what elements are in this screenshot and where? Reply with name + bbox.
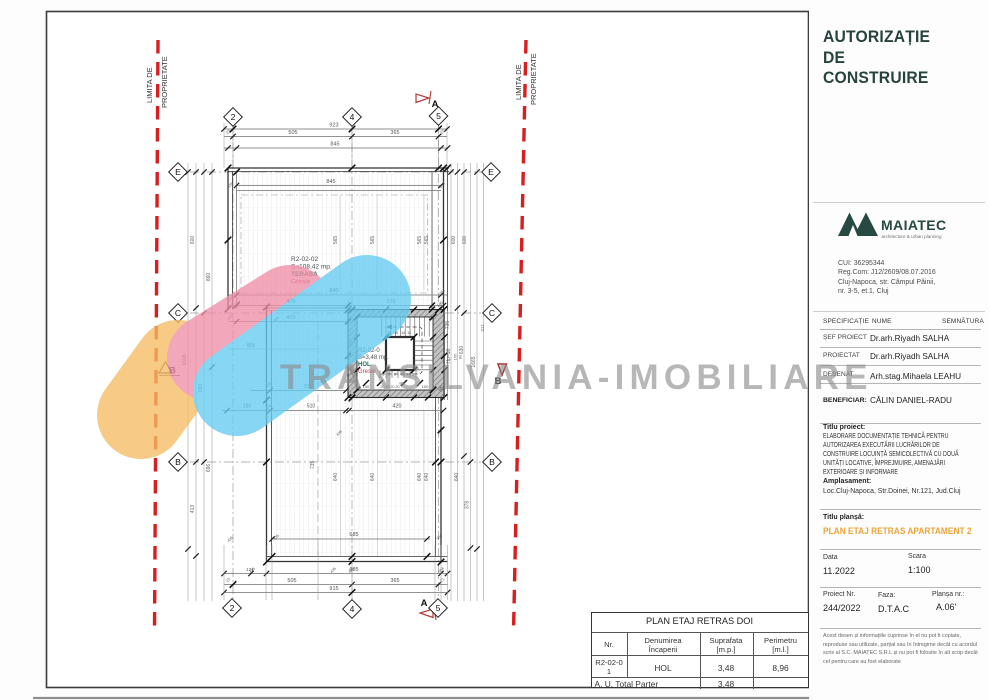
- svg-text:PROPRIETATE: PROPRIETATE: [160, 56, 169, 108]
- svg-text:R2-02-02: R2-02-02: [291, 256, 318, 263]
- svg-text:923: 923: [329, 123, 338, 129]
- svg-text:1665: 1665: [471, 356, 477, 367]
- svg-text:LIMITA DE: LIMITA DE: [145, 67, 154, 103]
- svg-text:Hp=90: Hp=90: [446, 348, 452, 363]
- svg-text:B: B: [175, 457, 181, 467]
- svg-text:C: C: [489, 308, 495, 318]
- svg-text:4: 4: [350, 604, 355, 614]
- svg-text:B: B: [495, 376, 502, 387]
- svg-text:420: 420: [392, 404, 401, 410]
- svg-text:845: 845: [330, 142, 339, 148]
- svg-text:640: 640: [454, 473, 460, 482]
- svg-text:640: 640: [424, 473, 430, 482]
- svg-text:640: 640: [333, 473, 339, 482]
- svg-text:MAIATEC: MAIATEC: [881, 217, 947, 233]
- svg-text:5: 5: [406, 373, 408, 377]
- svg-text:4: 4: [350, 112, 355, 122]
- svg-text:365: 365: [390, 578, 399, 584]
- svg-text:14: 14: [401, 331, 405, 335]
- svg-text:C: C: [175, 308, 181, 318]
- svg-text:architecture & urban planning: architecture & urban planning: [882, 234, 942, 239]
- svg-text:600: 600: [462, 236, 468, 245]
- svg-text:565: 565: [333, 236, 339, 245]
- svg-text:2: 2: [231, 112, 236, 122]
- svg-text:565: 565: [417, 236, 423, 245]
- svg-text:505: 505: [288, 130, 297, 136]
- svg-text:413: 413: [190, 505, 196, 514]
- svg-text:510: 510: [307, 404, 316, 410]
- svg-text:735: 735: [445, 321, 451, 330]
- svg-text:LIMITA DE: LIMITA DE: [514, 64, 523, 100]
- svg-text:735: 735: [310, 461, 316, 470]
- svg-text:860: 860: [206, 273, 212, 282]
- svg-text:PROPRIETATE: PROPRIETATE: [529, 53, 538, 105]
- svg-text:5: 5: [436, 111, 441, 121]
- svg-text:13: 13: [407, 331, 411, 335]
- svg-text:845: 845: [326, 179, 335, 185]
- svg-text:4: 4: [400, 373, 402, 377]
- svg-text:E: E: [175, 167, 181, 177]
- svg-text:3: 3: [394, 373, 396, 377]
- svg-text:630: 630: [459, 346, 465, 355]
- svg-text:Gresie: Gresie: [358, 369, 376, 375]
- svg-text:685: 685: [349, 532, 358, 538]
- svg-text:20 20 20 20: 20 20 20 20: [381, 385, 400, 389]
- svg-text:696: 696: [206, 464, 212, 473]
- svg-text:6: 6: [412, 373, 414, 377]
- svg-text:100: 100: [422, 384, 429, 389]
- svg-text:E: E: [488, 167, 494, 177]
- svg-text:640: 640: [417, 473, 423, 482]
- svg-text:378: 378: [465, 501, 471, 510]
- svg-text:100: 100: [350, 369, 354, 375]
- svg-text:365: 365: [390, 130, 399, 136]
- svg-text:2: 2: [230, 603, 235, 613]
- svg-text:5: 5: [436, 603, 441, 613]
- svg-text:2: 2: [388, 373, 390, 377]
- svg-text:600: 600: [451, 236, 457, 245]
- svg-text:A: A: [421, 598, 428, 609]
- svg-text:915: 915: [329, 586, 338, 592]
- svg-text:B: B: [489, 457, 495, 467]
- svg-text:505: 505: [287, 578, 296, 584]
- svg-text:600: 600: [190, 236, 196, 245]
- svg-text:640: 640: [370, 473, 376, 482]
- svg-text:311: 311: [480, 324, 485, 332]
- svg-text:565: 565: [424, 236, 430, 245]
- svg-text:565: 565: [370, 236, 376, 245]
